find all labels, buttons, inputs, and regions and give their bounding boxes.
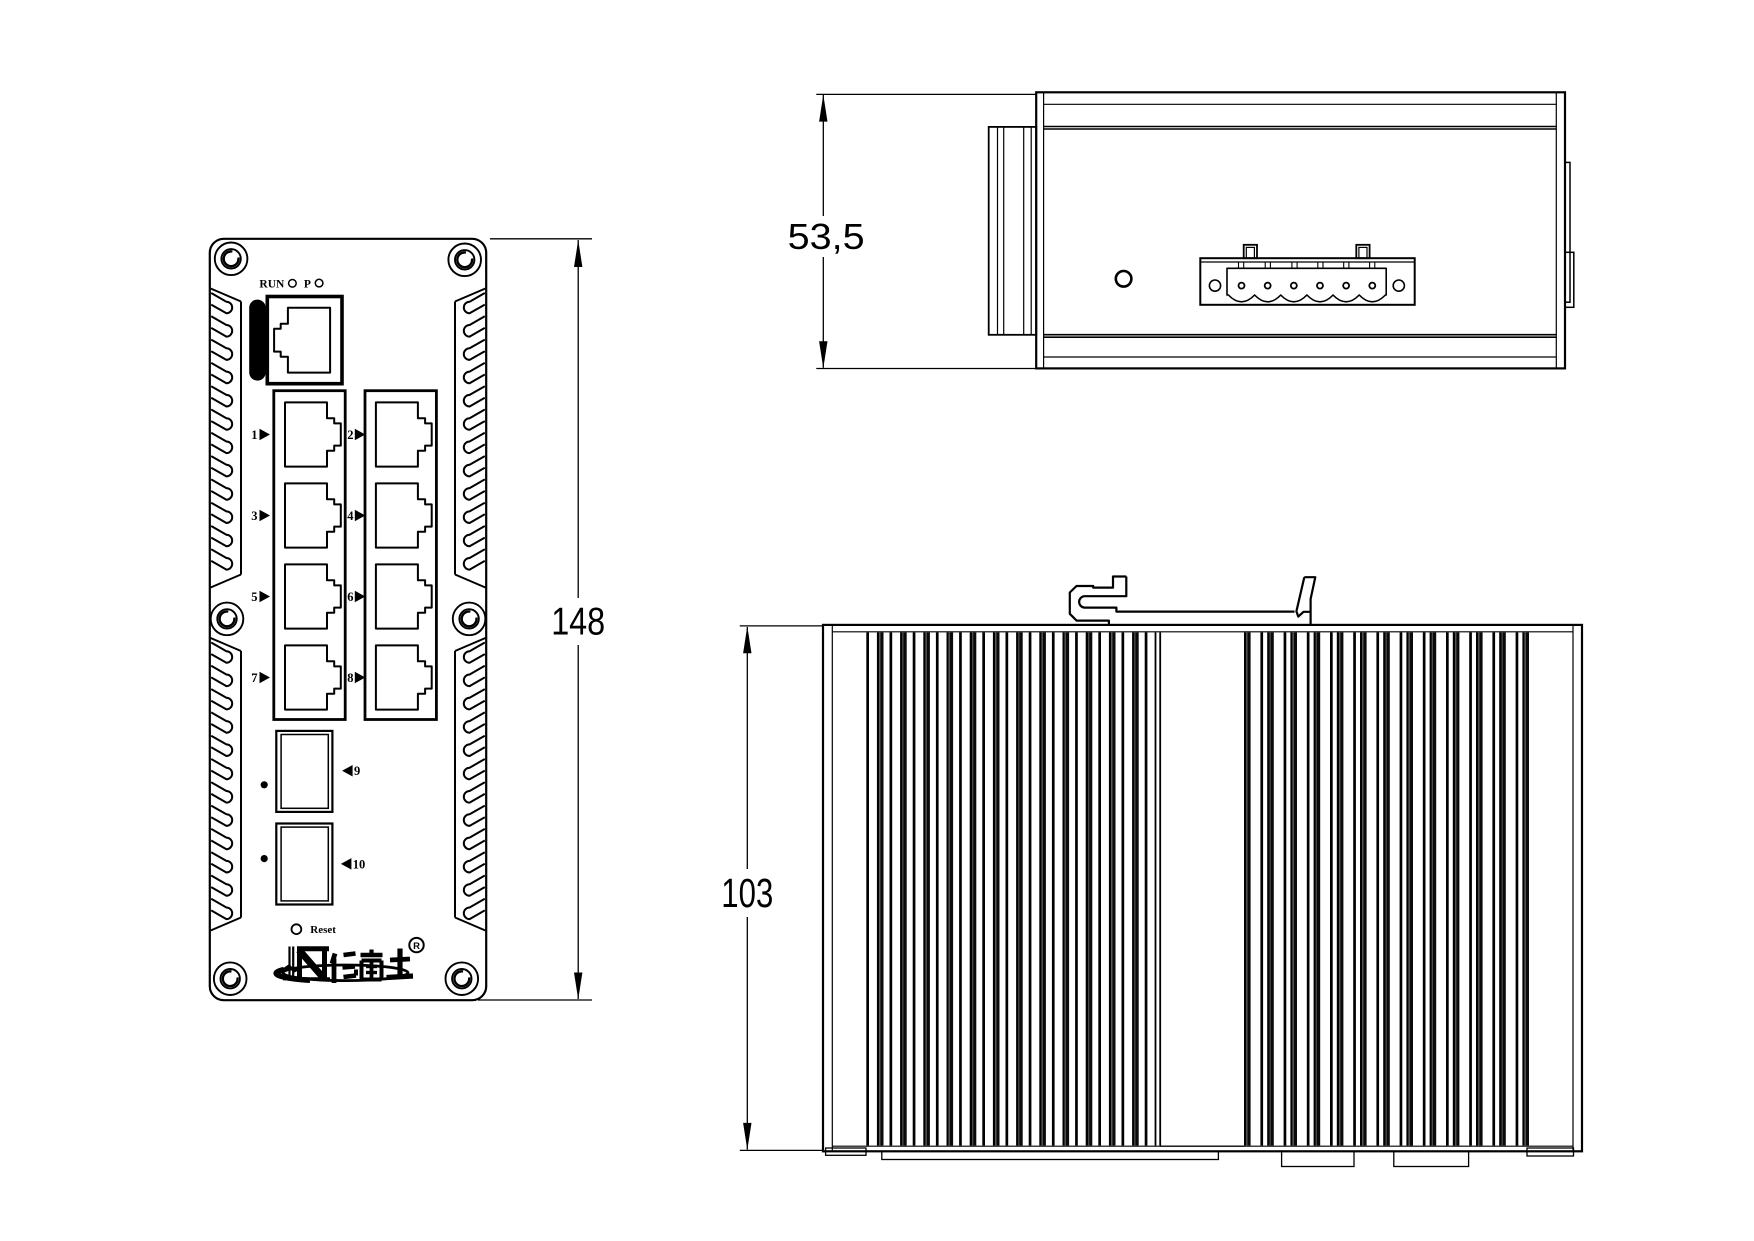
svg-text:1: 1 <box>251 428 257 442</box>
svg-text:3: 3 <box>251 509 257 523</box>
svg-text:R: R <box>413 941 420 952</box>
svg-text:53,5: 53,5 <box>788 216 865 257</box>
svg-text:2: 2 <box>347 428 353 442</box>
svg-text:RUN: RUN <box>259 278 285 290</box>
svg-text:P: P <box>304 278 311 290</box>
svg-text:4: 4 <box>347 509 354 523</box>
svg-text:5: 5 <box>251 590 257 604</box>
svg-text:103: 103 <box>721 870 773 916</box>
svg-text:6: 6 <box>347 590 353 604</box>
svg-text:148: 148 <box>551 601 605 644</box>
svg-text:8: 8 <box>347 671 353 685</box>
svg-text:9: 9 <box>354 764 360 778</box>
svg-text:10: 10 <box>353 857 366 871</box>
svg-text:Reset: Reset <box>310 924 336 936</box>
svg-text:7: 7 <box>251 671 257 685</box>
